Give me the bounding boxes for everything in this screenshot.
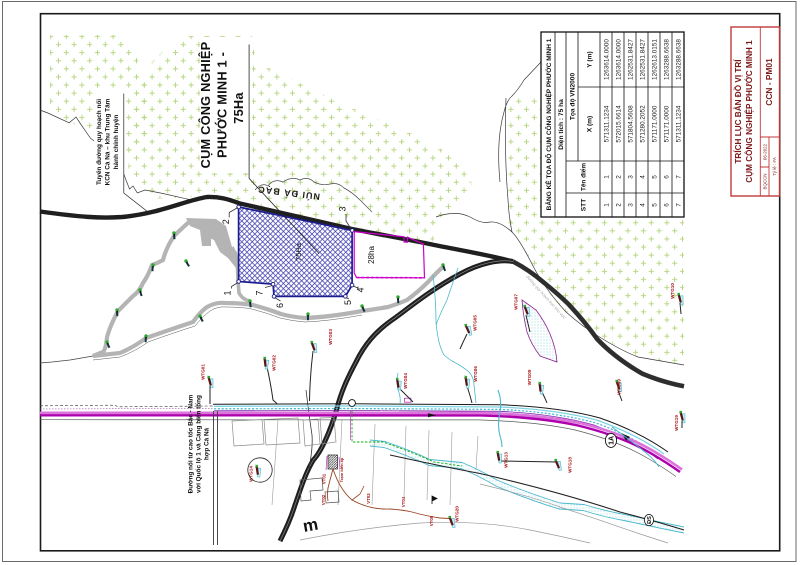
svg-text:3: 3 xyxy=(627,175,634,179)
svg-text:WTG07: WTG07 xyxy=(514,294,519,310)
svg-text:BẢNG KÊ TỌA ĐỘ CỤM CÔNG NGHIỆP: BẢNG KÊ TỌA ĐỘ CỤM CÔNG NGHIỆP PHƯỚC MIN… xyxy=(544,38,553,210)
svg-text:WTG10: WTG10 xyxy=(670,283,675,299)
svg-text:1262531.8427: 1262531.8427 xyxy=(627,39,634,80)
svg-text:5: 5 xyxy=(651,203,658,207)
svg-text:VT01: VT01 xyxy=(322,473,327,484)
svg-text:4: 4 xyxy=(639,175,646,179)
svg-text:572015.6614: 572015.6614 xyxy=(615,105,622,143)
svg-text:2: 2 xyxy=(615,175,622,179)
svg-text:571280.2052: 571280.2052 xyxy=(639,105,646,143)
svg-text:5: 5 xyxy=(343,300,353,305)
svg-text:Diện tích : 75 ha: Diện tích : 75 ha xyxy=(558,99,565,150)
svg-text:ĐS: ĐS xyxy=(647,516,653,524)
svg-text:1263614.0000: 1263614.0000 xyxy=(615,39,622,80)
svg-text:1262531.8427: 1262531.8427 xyxy=(639,39,646,80)
svg-text:WTG08: WTG08 xyxy=(527,369,532,385)
svg-text:1A: 1A xyxy=(609,436,616,445)
svg-text:75Ha: 75Ha xyxy=(231,92,246,124)
svg-text:1263288.6638: 1263288.6638 xyxy=(663,39,670,80)
svg-text:571311.1234: 571311.1234 xyxy=(675,105,682,142)
svg-text:571804.5608: 571804.5608 xyxy=(627,105,634,143)
svg-text:571171.0000: 571171.0000 xyxy=(651,105,658,142)
svg-text:75Ha: 75Ha xyxy=(294,242,303,261)
svg-text:CCN - PM01: CCN - PM01 xyxy=(764,58,774,106)
svg-text:KCN Cà Ná – khu Trung Tâm: KCN Cà Ná – khu Trung Tâm xyxy=(105,98,112,185)
svg-text:571311.1234: 571311.1234 xyxy=(603,105,610,142)
svg-text:BQCCN: BQCCN xyxy=(762,174,767,190)
svg-text:VT03: VT03 xyxy=(366,493,371,504)
svg-text:1: 1 xyxy=(223,290,233,295)
svg-text:WTG04: WTG04 xyxy=(403,373,408,389)
svg-text:Tọa độ VN2000: Tọa độ VN2000 xyxy=(570,73,577,121)
svg-text:06-2022: 06-2022 xyxy=(762,143,767,160)
svg-text:VT02: VT02 xyxy=(321,494,326,505)
svg-text:1: 1 xyxy=(603,203,610,207)
svg-text:Tên điểm: Tên điểm xyxy=(580,163,588,191)
svg-text:571171.0000: 571171.0000 xyxy=(663,105,670,142)
svg-text:CỤM CÔNG NGHIỆP: CỤM CÔNG NGHIỆP xyxy=(198,41,213,168)
svg-text:WTG18: WTG18 xyxy=(568,457,573,473)
svg-text:TRÍCH LỤC BẢN ĐỒ VỊ TRÍ: TRÍCH LỤC BẢN ĐỒ VỊ TRÍ xyxy=(732,59,743,164)
svg-text:WTG20: WTG20 xyxy=(455,506,460,522)
svg-text:1: 1 xyxy=(603,175,610,179)
svg-text:X (m): X (m) xyxy=(587,116,594,132)
svg-text:hợp Cà Ná: hợp Cà Ná xyxy=(204,427,211,460)
svg-text:VT04: VT04 xyxy=(401,496,406,507)
svg-text:2: 2 xyxy=(221,219,231,224)
svg-text:WTG02: WTG02 xyxy=(272,355,277,371)
svg-text:Y (m): Y (m) xyxy=(587,51,594,67)
svg-text:STT: STT xyxy=(581,199,588,211)
svg-text:1262613.0151: 1262613.0151 xyxy=(651,39,658,80)
svg-text:WTG06: WTG06 xyxy=(473,366,478,382)
svg-text:PHƯỚC MINH 1 -: PHƯỚC MINH 1 - xyxy=(215,52,230,158)
svg-text:1263614.0000: 1263614.0000 xyxy=(603,39,610,80)
svg-text:hành chính huyện: hành chính huyện xyxy=(113,115,120,170)
svg-text:Đường nối từ cao tốc Bắc - Nam: Đường nối từ cao tốc Bắc - Nam xyxy=(186,394,195,493)
svg-text:7: 7 xyxy=(675,175,682,179)
svg-text:WTG19: WTG19 xyxy=(674,415,679,431)
svg-text:3: 3 xyxy=(338,206,348,211)
svg-text:28ha: 28ha xyxy=(367,246,376,264)
svg-text:5: 5 xyxy=(651,175,658,179)
svg-text:WTG01: WTG01 xyxy=(201,364,206,380)
svg-text:WTG09: WTG09 xyxy=(617,379,622,395)
svg-text:WTG13: WTG13 xyxy=(504,452,509,468)
svg-text:6: 6 xyxy=(275,303,285,308)
svg-text:3: 3 xyxy=(627,203,634,207)
svg-text:7: 7 xyxy=(675,203,682,207)
svg-text:Tỷ lệ : #A: Tỷ lệ : #A xyxy=(772,157,777,176)
svg-text:6: 6 xyxy=(663,203,670,207)
svg-text:WTG05: WTG05 xyxy=(473,315,478,331)
svg-text:7: 7 xyxy=(255,290,265,295)
svg-text:WTG03: WTG03 xyxy=(328,329,333,345)
svg-text:1263288.6638: 1263288.6638 xyxy=(675,39,682,80)
svg-text:ĐT.10/2020: ĐT.10/2020 xyxy=(381,409,399,413)
svg-text:6: 6 xyxy=(663,175,670,179)
svg-text:với Quốc lộ 1 và Cảng biển tổn: với Quốc lộ 1 và Cảng biển tổng xyxy=(195,395,203,493)
svg-text:2: 2 xyxy=(615,203,622,207)
svg-text:4: 4 xyxy=(356,287,366,292)
svg-text:CỤM CÔNG NGHIỆP PHƯỚC MINH 1: CỤM CÔNG NGHIỆP PHƯỚC MINH 1 xyxy=(743,40,754,183)
svg-text:VT05: VT05 xyxy=(429,515,434,526)
svg-text:Tuyến đường quy hoạch nối: Tuyến đường quy hoạch nối xyxy=(95,99,103,185)
svg-text:Trạm biến áp: Trạm biến áp xyxy=(339,457,344,482)
svg-text:4: 4 xyxy=(639,203,646,207)
